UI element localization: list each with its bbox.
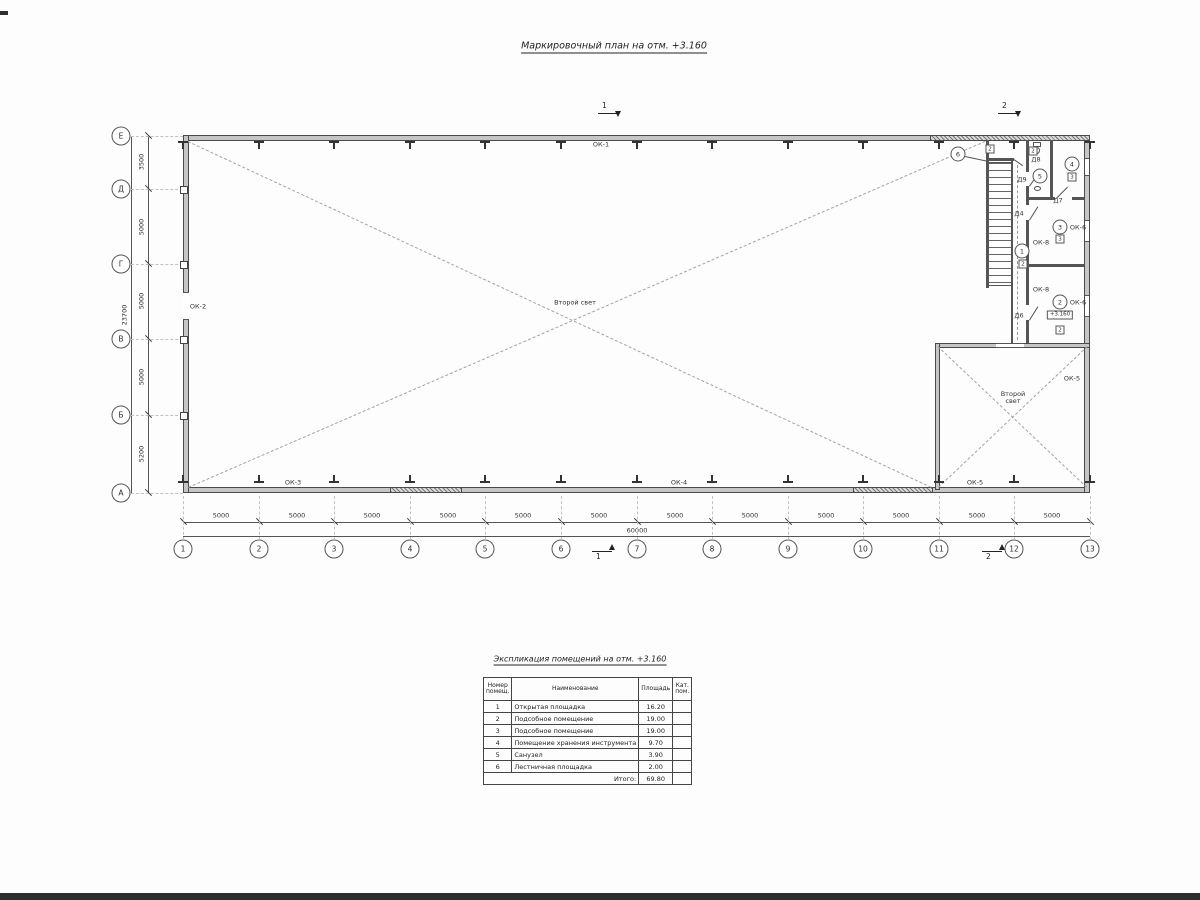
wall-bottom-hatch-1 bbox=[390, 487, 462, 493]
cell-area: 9.70 bbox=[639, 737, 673, 749]
column-symbol bbox=[556, 475, 566, 483]
column-symbol bbox=[405, 475, 415, 483]
column-symbol bbox=[480, 141, 490, 149]
sink-icon bbox=[1034, 186, 1041, 191]
explication-table: Номер помещ. Наименование Площадь Кат. п… bbox=[483, 677, 692, 785]
section-mark-1-bottom-number: 1 bbox=[596, 552, 601, 561]
total-cat-empty bbox=[673, 773, 692, 785]
grid-bubble-row: А bbox=[112, 484, 131, 503]
door-leaf-d6 bbox=[1029, 306, 1038, 320]
header-area: Площадь bbox=[639, 678, 673, 701]
table-header-row: Номер помещ. Наименование Площадь Кат. п… bbox=[484, 678, 692, 701]
section-arrow-up-icon bbox=[609, 544, 615, 550]
grid-bubble-row: В bbox=[112, 330, 131, 349]
header-name: Наименование bbox=[512, 678, 639, 701]
cell-num: 4 bbox=[484, 737, 512, 749]
cell-area: 19.00 bbox=[639, 713, 673, 725]
cell-name: Помещение хранения инструмента bbox=[512, 737, 639, 749]
room-bubble-3: 3 bbox=[1053, 220, 1068, 235]
cell-name: Подсобное помещение bbox=[512, 713, 639, 725]
grid-extension-line bbox=[131, 136, 183, 137]
cat-square-room4: 3 bbox=[1068, 173, 1077, 182]
table-total-row: Итого: 69.80 bbox=[484, 773, 692, 785]
column-symbol bbox=[707, 141, 717, 149]
scan-edge-left bbox=[0, 11, 8, 15]
column-symbol bbox=[783, 475, 793, 483]
section-mark-line bbox=[592, 551, 612, 552]
room-bubble-5: 5 bbox=[1033, 169, 1048, 184]
dim-5000: 5000 bbox=[667, 512, 684, 519]
grid-extension-line bbox=[410, 496, 411, 540]
room-bubble-4: 4 bbox=[1065, 157, 1080, 172]
room-bubble-1: 1 bbox=[1015, 244, 1030, 259]
cell-num: 5 bbox=[484, 749, 512, 761]
grid-bubble-col: 9 bbox=[779, 540, 798, 559]
scan-edge-bottom bbox=[0, 893, 1200, 900]
grid-extension-line bbox=[183, 496, 184, 540]
cell-area: 2.00 bbox=[639, 761, 673, 773]
column-symbol bbox=[707, 475, 717, 483]
grid-bubble-row: Б bbox=[112, 406, 131, 425]
label-door-d7: Д7 bbox=[1053, 197, 1062, 204]
grid-bubble-col: 3 bbox=[325, 540, 344, 559]
grid-bubble-col: 1 bbox=[174, 540, 193, 559]
label-ok3: ОК-3 bbox=[285, 479, 301, 486]
cell-area: 16.20 bbox=[639, 701, 673, 713]
total-value: 69.80 bbox=[639, 773, 673, 785]
wall-column-marker bbox=[180, 261, 188, 269]
dim-row: 5000 bbox=[138, 369, 145, 386]
dim-5000: 5000 bbox=[818, 512, 835, 519]
window-ok6-room4 bbox=[1085, 158, 1089, 176]
grid-bubble-row: Е bbox=[112, 127, 131, 146]
column-symbol bbox=[632, 141, 642, 149]
table-row: 6 Лестничная площадка 2.00 bbox=[484, 761, 692, 773]
wall-bottom bbox=[183, 487, 1090, 493]
label-door-d4: Д4 bbox=[1014, 210, 1023, 217]
cat-square-room3: 3 bbox=[1056, 235, 1065, 244]
dim-5000: 5000 bbox=[742, 512, 759, 519]
column-symbol bbox=[254, 475, 264, 483]
column-symbol bbox=[1085, 141, 1095, 149]
column-symbol bbox=[480, 475, 490, 483]
cell-cat bbox=[673, 749, 692, 761]
grid-extension-line bbox=[131, 189, 183, 190]
partition-corridor-4 bbox=[1026, 320, 1029, 343]
dim-5000: 5000 bbox=[1044, 512, 1061, 519]
grid-extension-line bbox=[712, 496, 713, 540]
label-ok5-right: ОК-5 bbox=[1064, 375, 1080, 382]
cell-name: Санузел bbox=[512, 749, 639, 761]
section-mark-1-top-number: 1 bbox=[602, 101, 607, 110]
column-symbol bbox=[858, 475, 868, 483]
label-ok1: ОК-1 bbox=[593, 141, 609, 148]
grid-bubble-col: 8 bbox=[703, 540, 722, 559]
cell-num: 2 bbox=[484, 713, 512, 725]
table-row: 5 Санузел 3.90 bbox=[484, 749, 692, 761]
total-label: Итого: bbox=[484, 773, 639, 785]
cell-area: 3.90 bbox=[639, 749, 673, 761]
grid-extension-line bbox=[485, 496, 486, 540]
column-symbol bbox=[632, 475, 642, 483]
grid-bubble-col: 10 bbox=[854, 540, 873, 559]
label-door-d8: Д8 bbox=[1031, 156, 1040, 163]
grid-bubble-col: 7 bbox=[628, 540, 647, 559]
dim-5000: 5000 bbox=[893, 512, 910, 519]
wall-column-marker bbox=[180, 336, 188, 344]
dim-5000: 5000 bbox=[969, 512, 986, 519]
grid-extension-line bbox=[131, 264, 183, 265]
room-bubble-6: 6 bbox=[951, 147, 966, 162]
dim-5000: 5000 bbox=[591, 512, 608, 519]
header-cat: Кат. пом. bbox=[673, 678, 692, 701]
column-symbol bbox=[329, 475, 339, 483]
cell-name: Открытая площадка bbox=[512, 701, 639, 713]
section-mark-2-bottom-number: 2 bbox=[986, 552, 991, 561]
label-ok4: ОК-4 bbox=[671, 479, 687, 486]
cell-num: 3 bbox=[484, 725, 512, 737]
cell-cat bbox=[673, 725, 692, 737]
cat-square-room5: 2 bbox=[1029, 147, 1038, 156]
grid-extension-line bbox=[788, 496, 789, 540]
dim-row: 5000 bbox=[138, 219, 145, 236]
partition-stair-platform bbox=[988, 158, 1014, 161]
grid-extension-line bbox=[939, 496, 940, 540]
dim-row: 3500 bbox=[138, 154, 145, 171]
grid-extension-line bbox=[259, 496, 260, 540]
section-arrow-down-icon bbox=[615, 111, 621, 117]
grid-bubble-row: Д bbox=[112, 180, 131, 199]
grid-extension-line bbox=[561, 496, 562, 540]
label-second-light-small: Второй свет bbox=[993, 391, 1033, 405]
dim-5000: 5000 bbox=[515, 512, 532, 519]
secondlight-wall-left bbox=[935, 343, 940, 490]
grid-bubble-col: 6 bbox=[552, 540, 571, 559]
hall-diagonal-1 bbox=[188, 141, 932, 488]
label-ok2: ОК-2 bbox=[190, 303, 206, 310]
label-door-d6: Д6 bbox=[1014, 312, 1023, 319]
header-num: Номер помещ. bbox=[484, 678, 512, 701]
cell-num: 1 bbox=[484, 701, 512, 713]
grid-bubble-col: 5 bbox=[476, 540, 495, 559]
column-symbol bbox=[1009, 475, 1019, 483]
column-symbol bbox=[1009, 141, 1019, 149]
table-row: 1 Открытая площадка 16.20 bbox=[484, 701, 692, 713]
cat-square-room2: 2 bbox=[1056, 326, 1065, 335]
partition-wc-room4 bbox=[1050, 140, 1053, 198]
column-symbol bbox=[858, 141, 868, 149]
drawing-sheet: Маркировочный план на отм. +3.160 ОК-1 О bbox=[0, 0, 1200, 900]
column-symbol bbox=[178, 141, 188, 149]
grid-bubble-col: 4 bbox=[401, 540, 420, 559]
column-symbol bbox=[405, 141, 415, 149]
section-mark-line bbox=[982, 551, 1002, 552]
hall-diagonal-2 bbox=[188, 141, 986, 488]
elevation-mark: +3.160 bbox=[1047, 311, 1073, 320]
explication-title: Экспликация помещений на отм. +3.160 bbox=[494, 655, 667, 666]
section-arrow-down-icon bbox=[1015, 111, 1021, 117]
dim-5000: 5000 bbox=[364, 512, 381, 519]
grid-extension-line bbox=[1090, 496, 1091, 540]
dim-row: 5000 bbox=[138, 293, 145, 310]
column-symbol bbox=[329, 141, 339, 149]
cell-area: 19.00 bbox=[639, 725, 673, 737]
column-symbol bbox=[556, 141, 566, 149]
column-symbol bbox=[934, 475, 944, 483]
table-row: 4 Помещение хранения инструмента 9.70 bbox=[484, 737, 692, 749]
label-ok8-a: ОК-8 bbox=[1033, 239, 1049, 246]
label-door-d9: Д9 bbox=[1017, 176, 1026, 183]
partition-corridor-1 bbox=[1026, 140, 1029, 172]
secondlight-opening bbox=[996, 343, 1024, 348]
table-row: 2 Подсобное помещение 19.00 bbox=[484, 713, 692, 725]
dim-5000: 5000 bbox=[289, 512, 306, 519]
grid-extension-line bbox=[131, 493, 183, 494]
grid-extension-line bbox=[1014, 496, 1015, 540]
wall-column-marker bbox=[180, 412, 188, 420]
column-symbol bbox=[1085, 475, 1095, 483]
grid-extension-line bbox=[863, 496, 864, 540]
grid-extension-line bbox=[131, 415, 183, 416]
stair-flight bbox=[988, 162, 1012, 286]
partition-room4-room3-a bbox=[1029, 197, 1055, 200]
grid-bubble-col: 11 bbox=[930, 540, 949, 559]
cell-num: 6 bbox=[484, 761, 512, 773]
label-second-light-main: Второй свет bbox=[553, 299, 597, 306]
wall-column-marker bbox=[180, 186, 188, 194]
column-symbol bbox=[783, 141, 793, 149]
dim-total-23700: 23700 bbox=[121, 305, 128, 326]
grid-bubble-row: Г bbox=[112, 255, 131, 274]
label-ok5-bottom: ОК-5 bbox=[967, 479, 983, 486]
column-symbol bbox=[254, 141, 264, 149]
grid-bubble-col: 13 bbox=[1081, 540, 1100, 559]
door-leaf-d4 bbox=[1029, 206, 1038, 220]
drawing-title: Маркировочный план на отм. +3.160 bbox=[521, 41, 707, 54]
cat-square-room6: 2 bbox=[986, 145, 995, 154]
cat-square-room1: 2 bbox=[1019, 260, 1028, 269]
grid-extension-line bbox=[637, 496, 638, 540]
table-row: 3 Подсобное помещение 19.00 bbox=[484, 725, 692, 737]
label-ok8-b: ОК-8 bbox=[1033, 286, 1049, 293]
partition-room3-room2 bbox=[1029, 264, 1084, 267]
label-ok6-room2: ОК-6 bbox=[1070, 299, 1086, 306]
dim-5000: 5000 bbox=[440, 512, 457, 519]
cell-cat bbox=[673, 737, 692, 749]
dim-row: 5200 bbox=[138, 446, 145, 463]
room-bubble-2: 2 bbox=[1053, 295, 1068, 310]
label-ok6-room3: ОК-6 bbox=[1070, 224, 1086, 231]
section-mark-2-top-number: 2 bbox=[1002, 101, 1007, 110]
cell-cat bbox=[673, 713, 692, 725]
grid-bubble-col: 12 bbox=[1005, 540, 1024, 559]
dim-5000: 5000 bbox=[213, 512, 230, 519]
cell-cat bbox=[673, 761, 692, 773]
room6-leader-line bbox=[965, 156, 988, 162]
column-symbol bbox=[934, 141, 944, 149]
grid-extension-line bbox=[131, 339, 183, 340]
grid-bubble-col: 2 bbox=[250, 540, 269, 559]
cell-name: Лестничная площадка bbox=[512, 761, 639, 773]
wall-bottom-hatch-2 bbox=[853, 487, 933, 493]
partition-corridor-2 bbox=[1026, 186, 1029, 205]
window-ok2 bbox=[183, 292, 189, 320]
cell-name: Подсобное помещение bbox=[512, 725, 639, 737]
cell-cat bbox=[673, 701, 692, 713]
door-leaf-d8 bbox=[1013, 159, 1023, 166]
grid-extension-line bbox=[334, 496, 335, 540]
column-symbol bbox=[178, 475, 188, 483]
partition-room4-room3-b bbox=[1072, 197, 1084, 200]
